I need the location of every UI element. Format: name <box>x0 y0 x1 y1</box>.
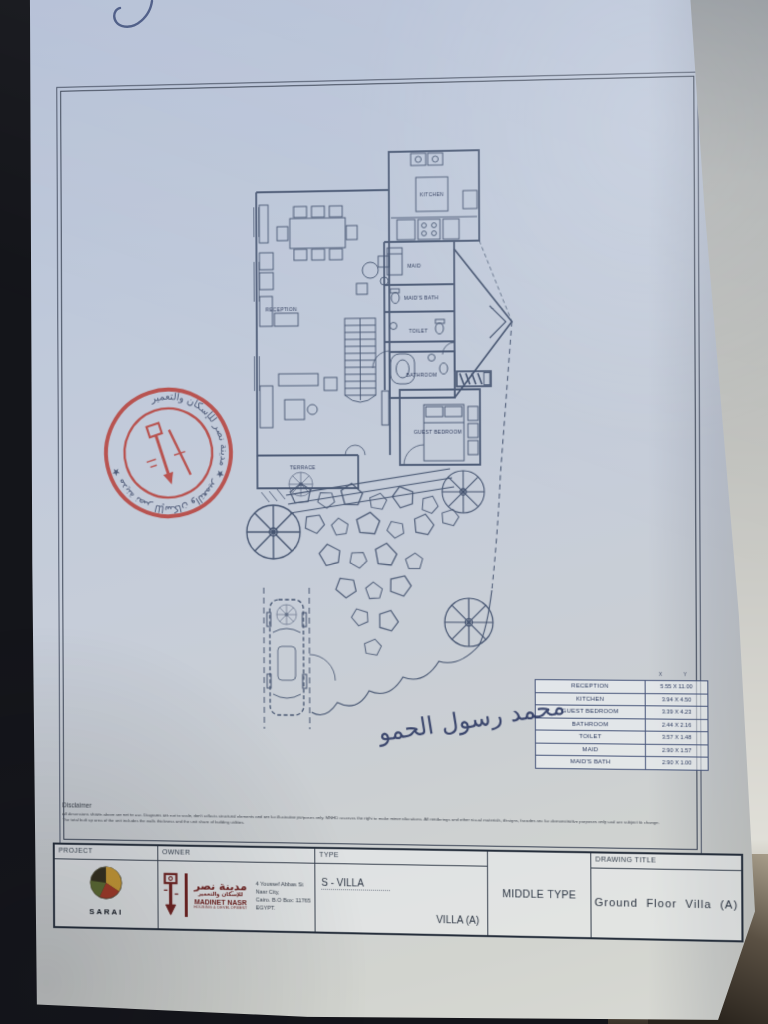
entry-arrow <box>454 240 512 397</box>
photo-background: KITCHEN RECEPTION MAID MAID'S BATH TOILE… <box>0 0 768 1024</box>
dimension-cell: 3.57 X 1.48 <box>646 732 708 744</box>
address-line: EGYPT. <box>256 905 311 914</box>
dimension-cell: 3.39 X 4.23 <box>646 706 708 718</box>
dimension-table: X Y RECEPTION5.55 X 11.00 KITCHEN3.94 X … <box>535 671 709 770</box>
stamp-ring-text: مدينة نصر للإسكان والتعمير ★ مدينة نصر ل… <box>92 375 245 530</box>
owner-column: OWNER <box>157 846 314 931</box>
room-label-bathroom: BATHROOM <box>406 373 437 379</box>
bathroom-fixtures <box>387 246 490 385</box>
type-value-secondary: VILLA (A) <box>436 915 479 927</box>
paper-sheet: KITCHEN RECEPTION MAID MAID'S BATH TOILE… <box>0 0 768 1024</box>
dimension-cell: 3.94 X 4.50 <box>646 694 708 706</box>
dimension-cell: 2.44 X 2.16 <box>646 719 708 731</box>
type-value-primary: S - VILLA <box>321 878 389 891</box>
mnhd-logo: مدينة نصر للإسكان والتعمير MADINET NASR … <box>158 861 314 931</box>
room-name-cell: RECEPTION <box>536 680 646 692</box>
dimension-table-axis-headers: X Y <box>535 671 709 680</box>
middle-type-value: MIDDLE TYPE <box>488 887 590 901</box>
stamp-emblem <box>136 418 193 489</box>
handwritten-pen-mark <box>100 0 170 45</box>
logo-divider <box>185 873 188 917</box>
stepping-stones <box>290 481 461 657</box>
dimension-cell: 2.90 X 1.57 <box>646 744 708 756</box>
room-label-guest-bedroom: GUEST BEDROOM <box>414 430 462 436</box>
room-label-toilet: TOILET <box>409 329 428 335</box>
approval-stamp: مدينة نصر للإسكان والتعمير ★ مدينة نصر ل… <box>90 373 247 533</box>
table-row: MAID'S BATH2.90 X 1.00 <box>535 756 709 771</box>
room-name-cell: MAID <box>536 743 646 756</box>
axis-header-x: X <box>659 672 662 677</box>
drawing-sheet-content: KITCHEN RECEPTION MAID MAID'S BATH TOILE… <box>44 46 746 948</box>
room-label-reception: RECEPTION <box>266 307 298 313</box>
room-name-cell: MAID'S BATH <box>536 756 646 769</box>
dimension-cell: 5.55 X 11.00 <box>646 681 708 693</box>
type-column: TYPE S - VILLA VILLA (A) <box>314 849 487 935</box>
svg-text:مدينة نصر للإسكان والتعمير ★ م: مدينة نصر للإسكان والتعمير ★ مدينة نصر ل… <box>92 375 245 530</box>
plan-walls <box>256 150 491 488</box>
drawing-title-column: DRAWING TITLE Ground Floor Villa (A) <box>590 853 741 940</box>
room-labels: KITCHEN RECEPTION MAID MAID'S BATH TOILE… <box>265 192 462 472</box>
room-label-maids-bath: MAID'S BATH <box>404 295 439 302</box>
middle-type-column: MIDDLE TYPE <box>487 852 591 938</box>
sarai-logo: SARAI <box>55 863 158 917</box>
staircase <box>345 318 376 402</box>
mnhd-key-icon <box>160 871 182 919</box>
driveway-car <box>264 588 336 730</box>
room-label-kitchen: KITCHEN <box>420 192 444 199</box>
dimension-cell: 2.90 X 1.00 <box>646 757 708 769</box>
mnhd-latin-sub: HOUSING & DEVELOPMENT <box>190 906 251 911</box>
owner-address: 4 Youssef Abbas St Nasr City, Cairo. B.O… <box>254 880 311 913</box>
room-label-maid: MAID <box>407 263 421 269</box>
sarai-logo-icon <box>88 864 125 902</box>
project-column: PROJECT SARAI <box>55 845 158 929</box>
reception-furniture <box>259 203 390 428</box>
title-block: PROJECT SARAI <box>53 843 744 943</box>
drawing-title-value: Ground Floor Villa (A) <box>591 869 741 941</box>
room-name-cell: TOILET <box>536 730 646 743</box>
room-label-terrace: TERRACE <box>290 465 316 471</box>
mnhd-arabic-sub: للإسكان والتعمير <box>190 892 251 899</box>
axis-header-y: Y <box>684 672 687 677</box>
sarai-logo-text: SARAI <box>55 906 158 917</box>
